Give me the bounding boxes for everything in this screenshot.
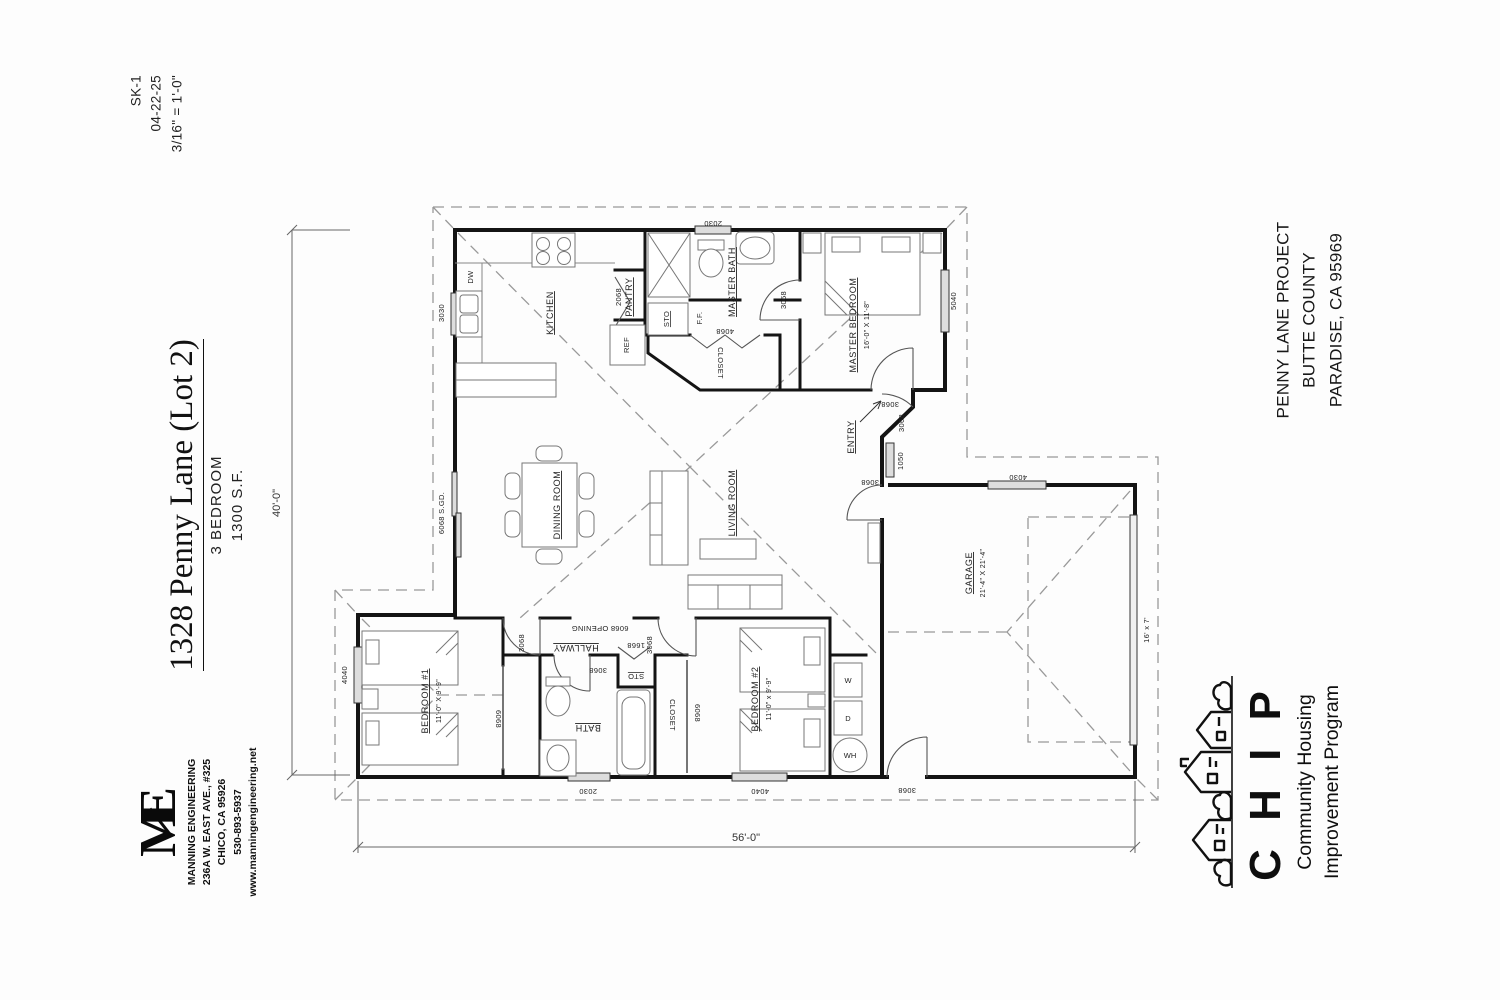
bedroom1-window (354, 647, 362, 703)
bed1 (362, 631, 458, 685)
label-kitchen-window: 3030 (437, 304, 446, 322)
label-kitchen: KITCHEN (545, 291, 555, 335)
nightstand (923, 233, 941, 253)
label-bedroom1-closet-door: 6068 (494, 710, 503, 728)
label-pantry: PANTRY (624, 277, 634, 316)
label-garage-window: 4030 (1009, 473, 1027, 482)
project-county: BUTTE COUNTY (1297, 185, 1323, 455)
toilet-tank (546, 677, 570, 686)
chip-line1: Community Housing (1292, 652, 1318, 912)
nightstand (808, 694, 825, 707)
label-sto-hall: STO (628, 672, 644, 681)
label-bedroom2-size: 11'-0" x 9'-9" (766, 677, 773, 720)
dining-chair (579, 473, 594, 499)
label-master-bath: MASTER BATH (727, 247, 737, 317)
label-closet2: CLOSET (668, 699, 677, 731)
floor-plan: 40'-0" 56'-0" (270, 185, 1180, 885)
label-bedroom1-size: 11'-0" X 9'-9" (436, 679, 443, 723)
label-bedroom2-door: 3068 (645, 636, 654, 654)
dining-chair (505, 473, 520, 499)
nightstand (803, 233, 821, 253)
project-name: PENNY LANE PROJECT (1270, 185, 1296, 455)
label-ff: F.F. (695, 312, 704, 325)
label-closet2-door: 6068 (693, 704, 702, 722)
label-patio-slider: 6068 S.GD. (437, 492, 446, 534)
label-garage: GARAGE (964, 552, 974, 594)
label-master-bedroom-window: 5040 (949, 292, 958, 310)
drawing-sheet: SK-1 04-22-25 3/16" = 1'-0" 1328 Penny L… (0, 0, 1500, 1000)
bedroom2-window (732, 773, 787, 781)
toilet-bowl (546, 686, 570, 716)
label-bath: BATH (575, 723, 601, 733)
chip-acronym: C H I P (1242, 652, 1290, 912)
label-entry-sidelight: 1050 (896, 452, 905, 470)
master-bed (825, 233, 920, 315)
label-pantry-door: 2068 (614, 288, 623, 306)
garage-door (1130, 515, 1137, 745)
label-bedroom1: BEDROOM #1 (420, 668, 430, 733)
plan-bedrooms: 3 BEDROOM (208, 305, 225, 705)
dining-chair (536, 446, 562, 461)
engineer-name: MANNING ENGINEERING (185, 727, 200, 917)
engineer-street: 236A W. EAST AVE., #325 (200, 727, 215, 917)
label-bedroom2: BEDROOM #2 (750, 666, 760, 731)
manning-logo-text: ME (130, 801, 187, 857)
dining-chair (505, 511, 520, 537)
label-bedroom1-window: 4040 (340, 666, 349, 684)
stove (532, 233, 575, 267)
label-water-heater: WH (844, 751, 857, 760)
sofa-vertical (650, 471, 688, 565)
patio-slider-panel (452, 472, 457, 516)
label-dw: DW (466, 270, 475, 284)
label-bath-window: 2030 (579, 787, 597, 796)
label-master-closet-door: 4068 (716, 327, 734, 336)
label-master-bath-window: 2030 (704, 219, 722, 228)
label-washer: W (844, 676, 852, 685)
label-sto-hall-door: 1668 (627, 641, 645, 650)
label-entry-living-door: 3068 (861, 478, 879, 487)
coffee-table (700, 539, 756, 559)
nightstand (362, 689, 378, 709)
engineer-phone: 530-893-5937 (231, 727, 246, 917)
sofa-horizontal (688, 575, 782, 609)
engineer-website: www.manningengineering.net (246, 727, 261, 917)
label-bath-door: 3068 (589, 666, 607, 675)
label-master-bath-door: 3068 (779, 291, 788, 309)
project-city: PARADISE, CA 95969 (1323, 185, 1349, 455)
sheet-scale: 3/16" = 1'-0" (167, 75, 187, 225)
label-master-bedroom: MASTER BEDROOM (848, 278, 858, 373)
plan-title: 1328 Penny Lane (Lot 2) (164, 339, 204, 671)
engineer-block: ME MANNING ENGINEERING 236A W. EAST AVE.… (133, 727, 261, 917)
sheet-info-block: SK-1 04-22-25 3/16" = 1'-0" (127, 75, 188, 225)
master-bedroom-window (941, 270, 949, 332)
patio-slider-panel (456, 513, 461, 557)
label-garage-entry-door: 3068 (898, 786, 916, 795)
label-hallway: HALLWAY (553, 643, 599, 653)
dim-width: 56'-0" (732, 832, 760, 844)
toilet-bowl (699, 249, 723, 277)
title-block: 1328 Penny Lane (Lot 2) 3 BEDROOM 1300 S… (164, 305, 246, 705)
label-garage-size: 21'-4" X 21'-4" (980, 548, 987, 597)
label-dining: DINING ROOM (552, 471, 562, 540)
label-bedroom1-door: 3068 (517, 634, 526, 652)
label-hall-opening: 6068 OPENING (572, 624, 629, 633)
label-master-bedroom-door: 3068 (881, 400, 899, 409)
project-block: PENNY LANE PROJECT BUTTE COUNTY PARADISE… (1270, 185, 1349, 455)
label-master-bedroom-size: 16'-0" X 11'-8" (864, 301, 871, 349)
entry-sidelight-window (886, 443, 894, 477)
sheet-number: SK-1 (127, 75, 147, 225)
dining-table (522, 463, 577, 547)
label-sto-kitchen: STO (662, 311, 671, 327)
chip-houses-logo-icon (1175, 676, 1235, 888)
label-living: LIVING ROOM (727, 470, 737, 537)
label-ref: REF (622, 337, 631, 353)
label-entry-door: 3068 (897, 414, 906, 432)
sheet-date: 04-22-25 (147, 75, 167, 225)
chip-line2: Improvement Program (1319, 652, 1345, 912)
dining-chair (579, 511, 594, 537)
label-entry: ENTRY (846, 420, 856, 453)
label-master-closet: CLOSET (716, 347, 725, 379)
dining-chair (536, 549, 562, 564)
engineer-city: CHICO, CA 95926 (215, 727, 230, 917)
label-dryer: D (845, 714, 851, 723)
manning-logo: ME (133, 787, 185, 857)
label-garage-door-size: 16' x 7' (1142, 617, 1151, 643)
plan-area: 1300 S.F. (229, 305, 246, 705)
chip-block: C H I P Community Housing Improvement Pr… (1175, 652, 1345, 912)
dim-depth: 40'-0" (271, 489, 283, 517)
media-console (868, 523, 880, 563)
label-bedroom2-window: 4040 (751, 787, 769, 796)
